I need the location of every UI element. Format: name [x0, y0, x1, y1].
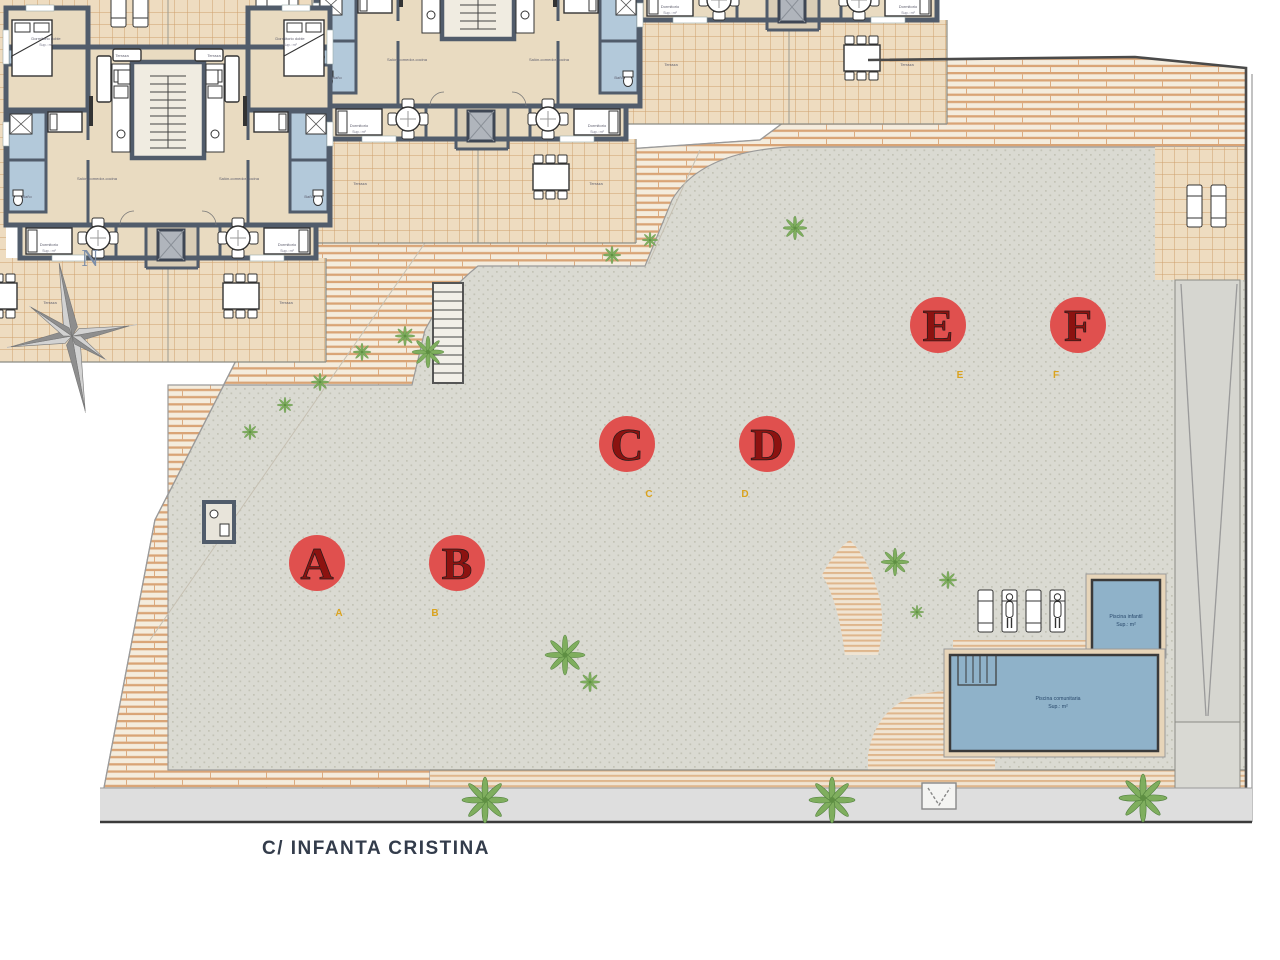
entry-letter-c: C [645, 489, 652, 500]
entry-letter-b: B [431, 608, 438, 619]
unit-letter-b: B [442, 538, 473, 589]
road-marker [922, 783, 956, 809]
entry-letter-a: A [335, 608, 342, 619]
entry-letter-f: F [1053, 370, 1059, 381]
unit-letter-d: D [750, 419, 783, 470]
exterior-staircase [433, 283, 463, 383]
street-name-label: C/ INFANTA CRISTINA [262, 838, 490, 859]
kids-pool-label-area: Sup.: m² [1116, 622, 1136, 628]
unit-letter-a: A [300, 538, 333, 589]
building-ab [0, 0, 333, 362]
unit-badge-f: F [1050, 297, 1106, 353]
unit-badge-c: C [599, 416, 655, 472]
entry-letter-d: D [741, 489, 748, 500]
unit-letter-f: F [1064, 300, 1092, 351]
compass-north-label: N [81, 246, 98, 272]
community-pool-label-area: Sup.: m² [1048, 704, 1068, 710]
walkway [430, 770, 1246, 788]
unit-badge-b: B [429, 535, 485, 591]
driveway-ramp [1175, 280, 1240, 788]
street [100, 783, 1252, 822]
unit-badge-d: D [739, 416, 795, 472]
unit-letter-c: C [610, 419, 643, 470]
utility-room [204, 502, 234, 542]
unit-badge-a: A [289, 535, 345, 591]
entry-letter-e: E [957, 370, 964, 381]
unit-letter-e: E [923, 300, 954, 351]
community-pool-label: Piscina comunitaria [1036, 696, 1081, 702]
community-pool [950, 655, 1158, 751]
unit-badge-e: E [910, 297, 966, 353]
floor-plan-drawing: Dormitorio doble Sup.: m² Dormitorio dob… [0, 0, 1280, 960]
kids-pool-label: Piscina infantil [1109, 614, 1142, 620]
site-plan-page: Dormitorio doble Sup.: m² Dormitorio dob… [0, 0, 1280, 960]
